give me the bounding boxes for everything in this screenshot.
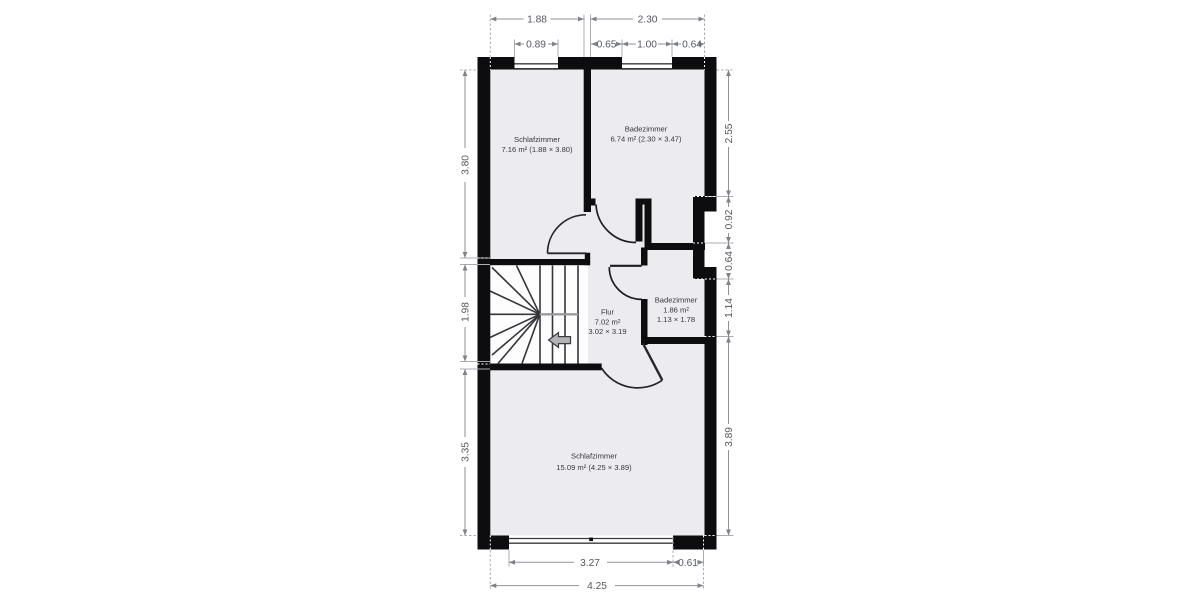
svg-text:1.86 m²: 1.86 m² (663, 306, 689, 315)
svg-text:3.27: 3.27 (580, 558, 600, 569)
svg-text:3.80: 3.80 (461, 155, 472, 175)
svg-text:3.35: 3.35 (461, 442, 472, 462)
svg-text:0.64: 0.64 (682, 40, 702, 51)
svg-text:1.00: 1.00 (637, 40, 657, 51)
svg-text:1.14: 1.14 (724, 298, 735, 318)
svg-text:0.61: 0.61 (678, 558, 698, 569)
svg-text:Schlafzimmer: Schlafzimmer (571, 452, 617, 461)
svg-text:1.13 × 1.78: 1.13 × 1.78 (657, 315, 695, 324)
svg-text:Flur: Flur (601, 308, 615, 317)
svg-text:0.92: 0.92 (724, 209, 735, 229)
svg-text:2.55: 2.55 (724, 123, 735, 143)
svg-text:4.25: 4.25 (587, 581, 607, 592)
svg-text:6.74 m² (2.30 × 3.47): 6.74 m² (2.30 × 3.47) (610, 135, 682, 144)
svg-text:0.64: 0.64 (724, 251, 735, 271)
svg-text:7.02 m²: 7.02 m² (595, 318, 621, 327)
svg-text:2.30: 2.30 (638, 15, 658, 26)
svg-text:3.89: 3.89 (724, 427, 735, 447)
svg-text:15.09 m² (4.25 × 3.89): 15.09 m² (4.25 × 3.89) (556, 463, 632, 472)
svg-text:Badezimmer: Badezimmer (625, 125, 668, 134)
svg-text:Schlafzimmer: Schlafzimmer (514, 135, 560, 144)
svg-text:0.89: 0.89 (526, 40, 546, 51)
svg-text:0.65: 0.65 (597, 40, 617, 51)
svg-text:3.02 × 3.19: 3.02 × 3.19 (588, 327, 626, 336)
svg-text:1.88: 1.88 (527, 15, 547, 26)
svg-text:7.16 m² (1.88 × 3.80): 7.16 m² (1.88 × 3.80) (501, 145, 573, 154)
svg-text:Badezimmer: Badezimmer (655, 296, 698, 305)
svg-text:1.98: 1.98 (461, 302, 472, 322)
